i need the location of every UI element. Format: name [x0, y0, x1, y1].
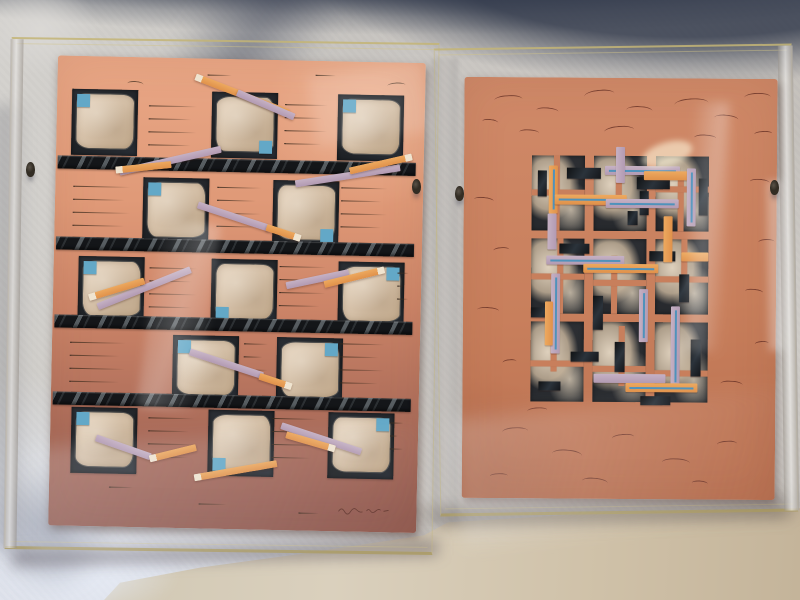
blue-square: [320, 229, 333, 242]
pen-line: [149, 306, 195, 308]
striped-black-bar: [56, 236, 414, 256]
black-bar: [699, 179, 708, 216]
pen-line: [199, 503, 229, 505]
acrylic-frame-right: [434, 44, 798, 517]
collage-strip: [616, 147, 625, 183]
collage-strip: [670, 306, 680, 386]
black-bar: [567, 168, 601, 179]
pen-squiggle: [758, 239, 774, 245]
pen-line: [217, 200, 259, 202]
pen-line: [341, 213, 391, 215]
pen-line: [272, 457, 314, 459]
black-bar: [538, 170, 547, 196]
pen-squiggle: [717, 440, 737, 448]
pen-squiggle: [745, 288, 763, 296]
photo-scene: [0, 0, 800, 600]
pen-line: [284, 143, 324, 145]
pen-line: [279, 292, 329, 294]
pen-line: [109, 487, 135, 489]
pen-line: [285, 104, 331, 106]
black-bar: [538, 381, 560, 390]
pen-line: [73, 186, 135, 188]
pen-line: [150, 267, 202, 269]
pen-squiggle: [755, 341, 769, 348]
blue-square: [376, 418, 389, 431]
pen-line: [298, 513, 320, 514]
pen-line: [70, 355, 124, 357]
pen-line: [340, 226, 384, 228]
artist-signature: [336, 505, 390, 516]
collage-strip: [593, 374, 665, 384]
pen-line: [149, 118, 195, 120]
pen-mark: [127, 80, 143, 87]
pen-line: [316, 75, 338, 76]
pen-squiggle: [494, 95, 522, 106]
pen-squiggle: [662, 458, 690, 468]
pen-squiggle: [527, 407, 547, 415]
collage-strip: [663, 216, 672, 262]
pen-mark: [387, 82, 405, 89]
pen-squiggle: [674, 97, 709, 110]
collage-strip: [549, 165, 558, 213]
acrylic-frame-left: [4, 37, 439, 555]
pen-squiggle: [612, 433, 635, 442]
black-bar: [679, 274, 689, 302]
black-bar: [628, 211, 638, 225]
pen-squiggle: [493, 247, 509, 254]
pen-squiggle: [714, 114, 739, 124]
blue-square: [76, 412, 89, 425]
pen-line: [341, 200, 385, 202]
pen-line: [73, 199, 129, 201]
pen-line: [149, 293, 201, 295]
artwork-left-collage: [48, 55, 426, 533]
pen-line: [279, 305, 323, 307]
pen-line: [148, 417, 198, 419]
pen-line: [73, 212, 135, 214]
black-bar: [640, 396, 670, 405]
black-bar: [559, 244, 589, 254]
pen-squiggle: [581, 477, 608, 488]
pen-line: [72, 225, 128, 227]
pen-squiggle: [473, 196, 494, 205]
pen-squiggle: [694, 134, 716, 142]
pen-squiggle: [519, 129, 539, 137]
collage-strip: [644, 171, 688, 180]
pen-squiggle: [754, 131, 772, 138]
pen-line: [70, 342, 130, 344]
black-bar: [593, 296, 603, 330]
pen-line: [148, 430, 192, 432]
collage-square: [272, 180, 339, 247]
frame-clip: [770, 180, 779, 195]
pen-squiggle: [490, 473, 508, 480]
frame-clip: [412, 179, 421, 194]
blue-square: [259, 141, 272, 154]
collage-square: [142, 177, 209, 244]
pen-squiggle: [502, 427, 528, 437]
pen-squiggle: [552, 448, 583, 460]
pen-squiggle: [482, 118, 499, 126]
pen-line: [340, 343, 388, 345]
central-collage-motif: [530, 155, 709, 402]
collage-square: [210, 259, 277, 326]
collage-square: [337, 94, 404, 161]
pen-line: [280, 266, 330, 268]
pen-line: [341, 187, 391, 189]
pen-line: [69, 368, 129, 370]
pen-line: [272, 418, 320, 420]
pen-squiggle: [477, 306, 499, 315]
collage-strip: [625, 383, 697, 393]
blue-square: [83, 261, 96, 274]
pen-line: [148, 144, 194, 146]
black-bar: [691, 339, 701, 376]
collage-strip: [545, 301, 553, 345]
collage-strip: [547, 213, 556, 249]
artwork-right-collage: [462, 77, 778, 500]
pen-line: [339, 369, 387, 371]
pen-line: [208, 75, 234, 77]
pen-line: [217, 187, 265, 189]
pen-line: [397, 286, 403, 287]
pen-line: [390, 435, 398, 436]
pen-squiggle: [536, 107, 558, 116]
pen-line: [244, 356, 264, 357]
pen-squiggle: [750, 178, 770, 186]
pen-squiggle: [584, 88, 615, 101]
pen-line: [284, 130, 330, 132]
terracotta-grid-line: [593, 280, 646, 286]
blue-square: [77, 94, 90, 107]
collage-strip: [681, 252, 708, 261]
collage-strip: [149, 444, 197, 462]
blue-square: [325, 343, 338, 356]
collage-strip: [606, 199, 679, 209]
pen-line: [69, 381, 123, 383]
blue-square: [386, 267, 399, 280]
collage-square: [71, 89, 138, 156]
collage-square: [276, 337, 343, 404]
black-bar: [571, 352, 599, 362]
pen-squiggle: [626, 106, 652, 116]
black-bar: [615, 342, 625, 372]
collage-strip: [639, 289, 648, 342]
pen-line: [148, 131, 200, 133]
pen-squiggle: [604, 125, 635, 137]
frame-clip: [26, 162, 35, 177]
pen-squiggle: [692, 480, 708, 487]
collage-strip: [583, 264, 658, 274]
pen-line: [340, 356, 382, 358]
pen-line: [339, 382, 381, 384]
pen-squiggle: [502, 359, 517, 366]
pen-squiggle: [744, 93, 770, 102]
pen-squiggle: [720, 380, 742, 389]
frame-clip: [455, 186, 464, 201]
blue-square: [148, 182, 161, 195]
collage-strip: [687, 168, 696, 226]
blue-square: [343, 99, 356, 112]
pen-line: [397, 299, 409, 300]
pen-line: [244, 343, 270, 345]
pen-line: [149, 105, 201, 107]
